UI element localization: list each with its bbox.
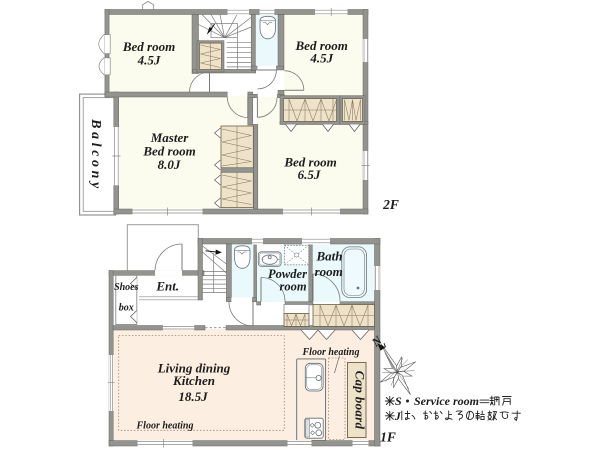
svg-text:Floor heating: Floor heating bbox=[302, 347, 360, 358]
svg-text:1F: 1F bbox=[380, 430, 396, 445]
svg-text:J: J bbox=[394, 409, 402, 423]
svg-text:4.5J: 4.5J bbox=[137, 53, 161, 68]
svg-text:Floor heating: Floor heating bbox=[136, 421, 194, 432]
svg-text:Shoes: Shoes bbox=[114, 282, 139, 293]
svg-text:room: room bbox=[279, 280, 306, 294]
svg-text:Kitchen: Kitchen bbox=[172, 373, 215, 388]
svg-text:2F: 2F bbox=[382, 197, 399, 212]
svg-text:6.5J: 6.5J bbox=[298, 167, 321, 182]
svg-text:box: box bbox=[119, 303, 134, 314]
svg-text:Ent.: Ent. bbox=[155, 279, 179, 294]
svg-text:Balcony: Balcony bbox=[88, 118, 103, 192]
svg-text:S: S bbox=[395, 394, 402, 408]
svg-text:Cap board: Cap board bbox=[353, 371, 368, 430]
svg-text:8.0J: 8.0J bbox=[158, 157, 181, 172]
svg-text:Bath: Bath bbox=[315, 249, 342, 264]
svg-text:Service room: Service room bbox=[414, 394, 479, 408]
svg-text:4.5J: 4.5J bbox=[309, 51, 333, 66]
svg-text:room: room bbox=[315, 264, 343, 279]
svg-text:18.5J: 18.5J bbox=[178, 389, 208, 404]
